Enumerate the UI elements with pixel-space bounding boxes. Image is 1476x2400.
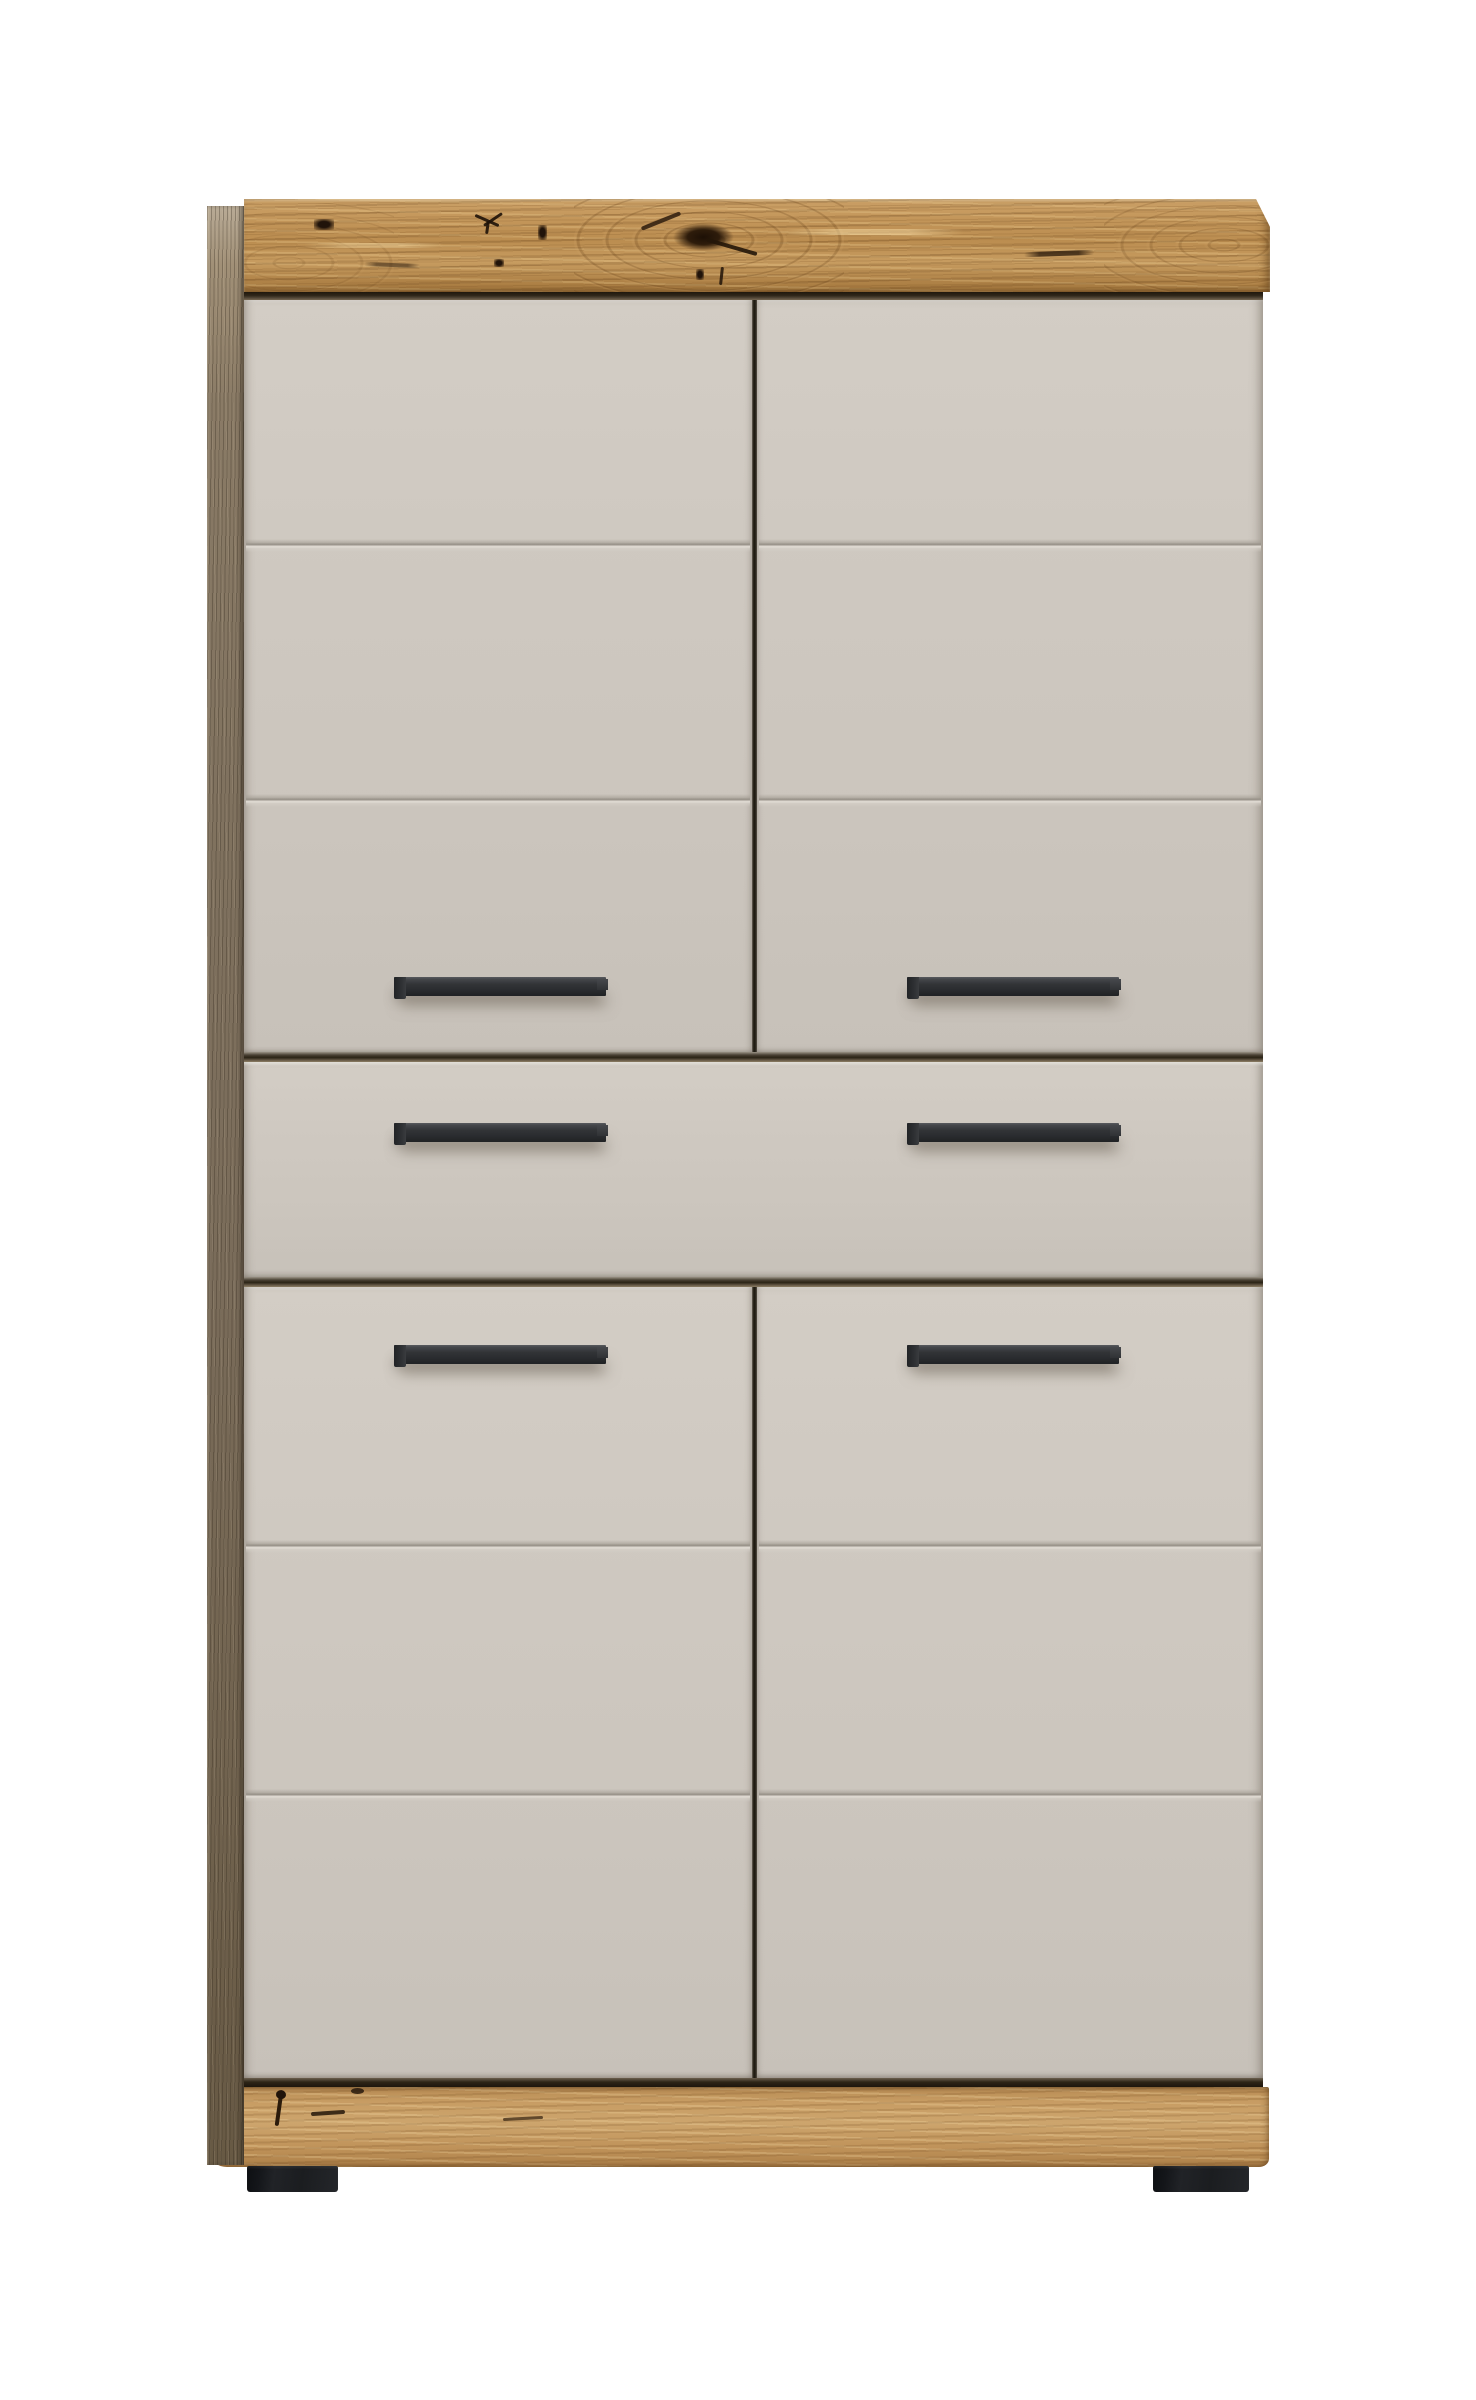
door-groove bbox=[246, 1789, 750, 1802]
horizontal-gap bbox=[244, 1052, 1263, 1062]
wood-grain-swirl bbox=[1104, 199, 1270, 292]
handle-lower-right-door bbox=[907, 1345, 1119, 1364]
plinth-crack bbox=[503, 2116, 543, 2121]
upper-left-door bbox=[244, 300, 752, 1052]
wood-streak bbox=[1024, 250, 1094, 257]
door-groove bbox=[246, 794, 750, 807]
wood-crack bbox=[472, 209, 508, 235]
bottom-gap bbox=[244, 2078, 1263, 2087]
horizontal-gap bbox=[244, 1277, 1263, 1287]
door-divider-lower bbox=[752, 1287, 757, 2078]
door-groove bbox=[759, 1789, 1261, 1802]
left-foot bbox=[247, 2166, 338, 2192]
wood-knot-large bbox=[654, 215, 749, 261]
top-wood-trim bbox=[244, 199, 1270, 292]
wood-knot bbox=[494, 259, 504, 267]
lower-right-door bbox=[757, 1287, 1263, 2078]
door-divider-upper bbox=[752, 300, 757, 1052]
door-groove bbox=[246, 539, 750, 552]
cabinet bbox=[0, 0, 1476, 2400]
plinth-crack bbox=[311, 2110, 345, 2116]
door-groove bbox=[759, 1540, 1261, 1553]
handle-drawer-left bbox=[394, 1123, 606, 1142]
trim-shadow-gap bbox=[244, 292, 1263, 300]
side-panel bbox=[207, 206, 244, 2165]
plinth-knot bbox=[351, 2088, 364, 2094]
handle-upper-right-door bbox=[907, 977, 1119, 996]
wood-knot bbox=[538, 225, 547, 240]
door-groove bbox=[246, 1540, 750, 1553]
drawer-front bbox=[244, 1062, 1263, 1277]
wood-streak bbox=[784, 229, 964, 235]
plinth-knot-crack bbox=[275, 2092, 284, 2126]
lower-left-door bbox=[244, 1287, 752, 2078]
wood-plinth bbox=[211, 2087, 1269, 2167]
wood-knot bbox=[696, 269, 704, 280]
door-groove bbox=[759, 539, 1261, 552]
handle-lower-left-door bbox=[394, 1345, 606, 1364]
right-foot bbox=[1153, 2166, 1249, 2192]
handle-upper-left-door bbox=[394, 977, 606, 996]
wood-knot bbox=[314, 219, 334, 230]
product-stage bbox=[0, 0, 1476, 2400]
door-groove bbox=[759, 794, 1261, 807]
wood-streak bbox=[304, 243, 444, 248]
handle-drawer-right bbox=[907, 1123, 1119, 1142]
upper-right-door bbox=[757, 300, 1263, 1052]
